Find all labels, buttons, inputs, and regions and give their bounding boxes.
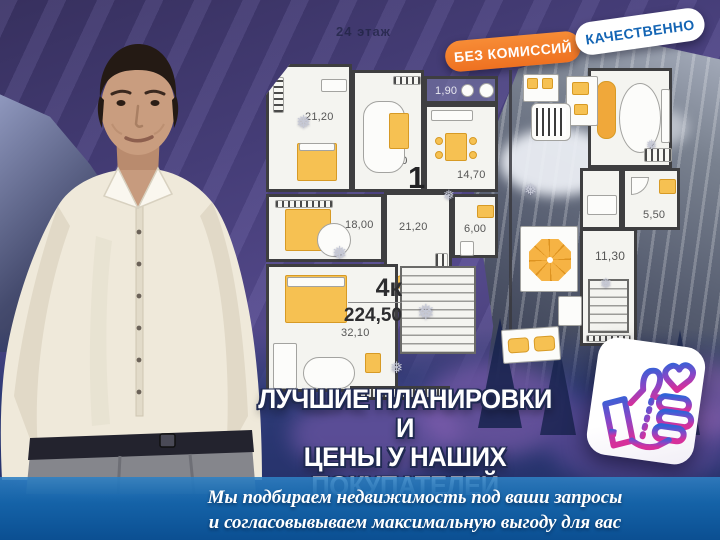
closet-icon (661, 89, 670, 143)
pillow-icon (287, 277, 345, 287)
plan-number: 1 (408, 160, 425, 196)
headline-line-2: ЦЕНЫ У НАШИХ (246, 443, 563, 472)
eye (117, 100, 126, 106)
unit-summary: 4к 224,50 (340, 276, 402, 327)
table-icon (558, 296, 582, 326)
thumbs-up-heart-icon (584, 335, 707, 467)
staircase (400, 266, 476, 354)
room-balcony: 1,90 (424, 76, 498, 104)
footer-text: Мы подбираем недвижимость под ваши запро… (120, 485, 710, 535)
sun-loungers (501, 326, 561, 364)
room-area-label: 11,30 (595, 249, 625, 263)
agent-photo (0, 36, 268, 494)
room-right-bathroom: 5,50 (622, 168, 680, 230)
cuff-dot (608, 429, 617, 438)
like-sticker (584, 335, 707, 467)
shower-icon (631, 177, 649, 195)
room-bedroom-left: 18,00 (266, 194, 384, 262)
lounger-icon (533, 335, 555, 351)
room-area-label: 18,00 (345, 219, 374, 231)
pillow-icon (299, 143, 335, 151)
terrace-deck (520, 226, 578, 292)
radiator-grill (536, 108, 566, 136)
lounger-icon (507, 337, 529, 353)
desk-icon (273, 343, 297, 389)
snowflake-icon: ❅ (443, 188, 455, 204)
chair-icon (461, 84, 474, 97)
room-bathroom: 6,00 (452, 194, 498, 258)
heart (663, 363, 694, 392)
ad-banner: 24 этаж БЕЗ КОМИССИЙ КАЧЕСТВЕННО 21,20 1… (0, 0, 720, 540)
unit-type: 4к (340, 276, 402, 300)
sink-icon (659, 179, 676, 194)
snowflake-icon: ❅ (390, 358, 403, 377)
box-icon (574, 104, 588, 115)
snowflake-icon: ❅ (332, 243, 347, 264)
room-area-label: 1,90 (435, 85, 457, 97)
sofa-icon (523, 74, 559, 102)
room-area-label: 5,50 (643, 209, 665, 221)
table-icon (479, 83, 494, 98)
room-right-corridor (580, 168, 622, 230)
floor-label: 24 этаж (336, 24, 391, 39)
footer-line-2: и согласовывываем максимальную выгоду дл… (120, 510, 710, 535)
pillow-icon (542, 78, 553, 89)
desk-icon (321, 79, 347, 92)
chair-icon (469, 151, 477, 159)
footer-line-1: Мы подбираем недвижимость под ваши запро… (120, 485, 710, 510)
dresser-icon (587, 195, 617, 215)
blanket-icon (389, 113, 409, 149)
dining-table-icon (445, 133, 467, 161)
divider (348, 302, 402, 303)
snowflake-icon: ❅ (646, 138, 657, 153)
umbrella-center (547, 257, 553, 263)
snowflake-icon: ❅ (524, 180, 537, 199)
cabinet-icon (365, 353, 381, 373)
headline-line-1: ЛУЧШИЕ ПЛАНИРОВКИ И (246, 385, 563, 443)
chair-icon (435, 137, 443, 145)
sink-icon (477, 205, 494, 218)
room-area-label: 14,70 (457, 169, 486, 181)
wardrobe-icon (275, 200, 333, 208)
chair-icon (435, 151, 443, 159)
chair-icon (469, 137, 477, 145)
pillow-icon (527, 78, 538, 89)
sofa-icon (597, 81, 616, 139)
room-kitchen: 14,70 (424, 104, 498, 192)
snowflake-icon: ❅ (296, 112, 311, 133)
snowflake-icon: ❅ (417, 300, 435, 324)
kitchen-counter-icon (431, 110, 473, 121)
snowflake-icon: ❅ (600, 276, 612, 292)
room-area-label: 6,00 (464, 223, 486, 235)
box-icon (572, 82, 589, 95)
radiator-icon (531, 103, 571, 141)
unit-total-area: 224,50 (340, 305, 402, 327)
room-area-label: 32,10 (341, 327, 370, 339)
belt-buckle (160, 434, 175, 447)
wall-line (509, 70, 512, 342)
room-area-label: 21,20 (399, 221, 428, 233)
eye (151, 100, 160, 106)
footer-bar: Мы подбираем недвижимость под ваши запро… (0, 477, 720, 540)
shelf-icon (393, 76, 421, 85)
toilet-icon (460, 241, 474, 256)
